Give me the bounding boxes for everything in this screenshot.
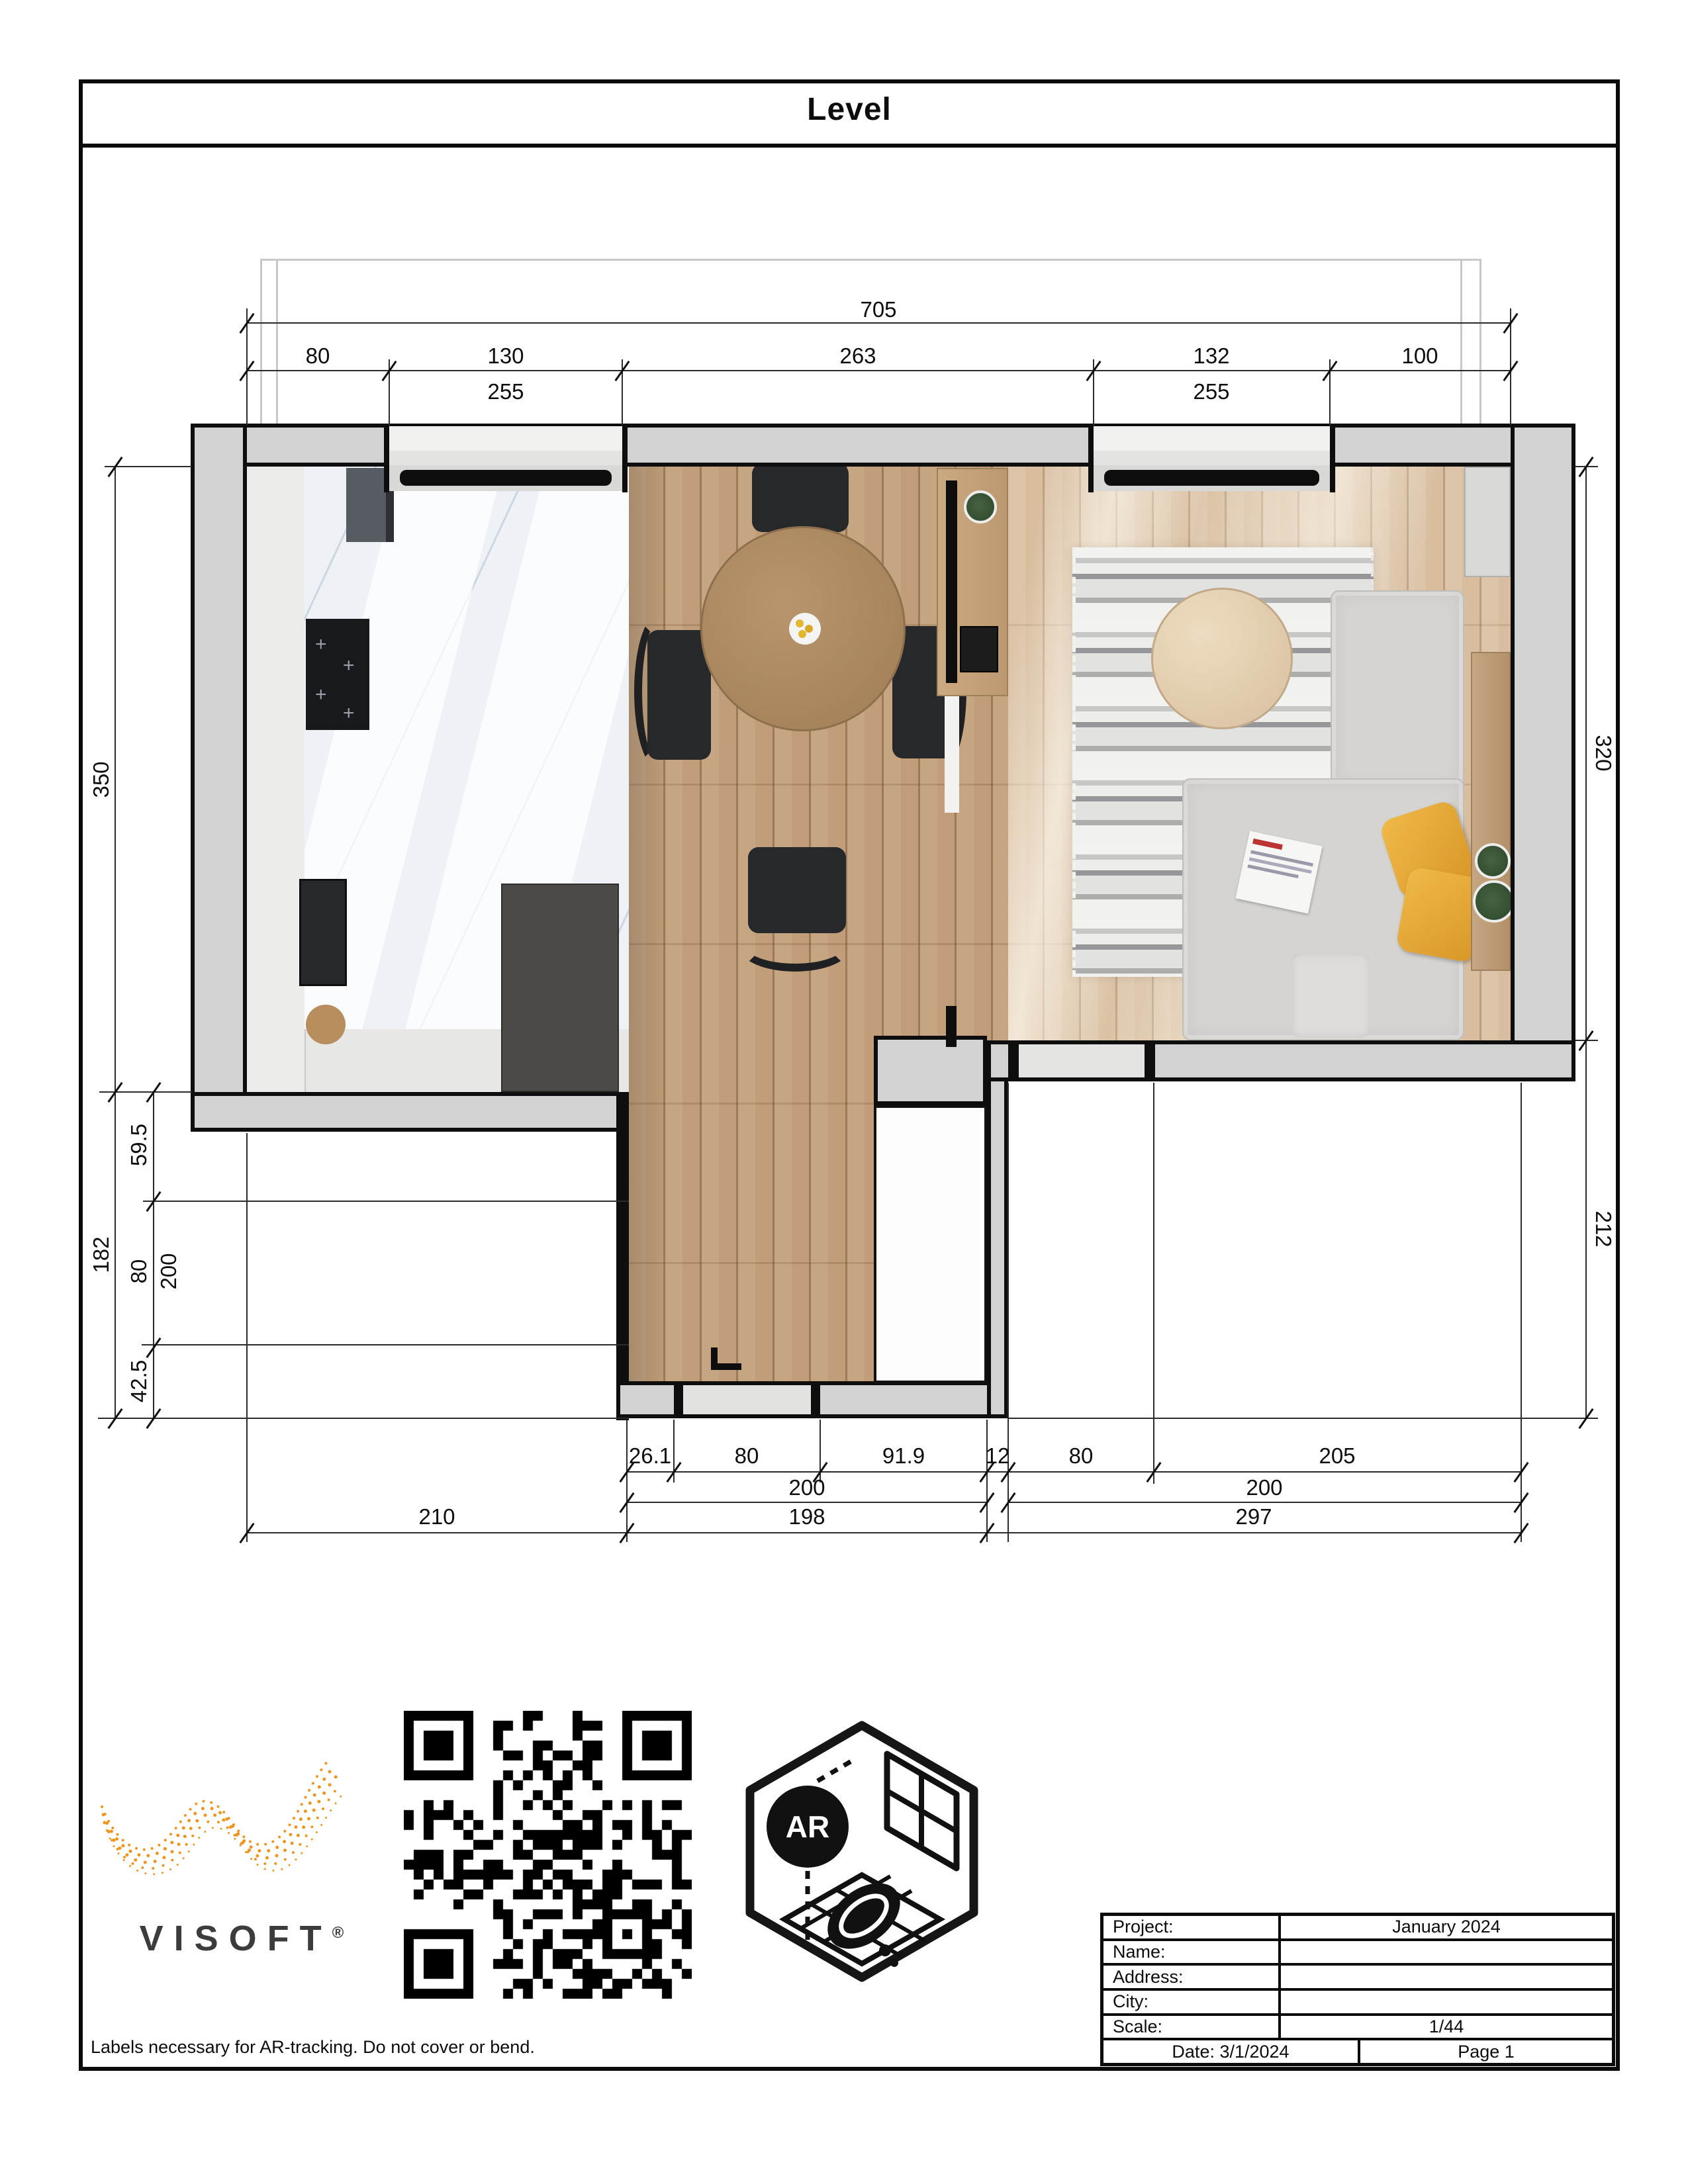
- field-value: [1281, 1966, 1612, 1988]
- window-blind-bar: [1104, 470, 1319, 486]
- door-jamb: [946, 1006, 957, 1047]
- kitchen-cabinet-run: [247, 467, 306, 1092]
- door-jamb: [811, 1381, 820, 1418]
- coffee-table: [1151, 588, 1293, 729]
- kitchen-stool: [306, 1005, 346, 1044]
- tv-edge: [946, 480, 957, 683]
- plant: [1475, 843, 1511, 879]
- title-block-row: Name:: [1103, 1941, 1612, 1966]
- oven: [299, 879, 347, 986]
- page-title: Level: [79, 91, 1620, 128]
- dining-chair: [647, 630, 711, 760]
- ar-badge: AR: [738, 1717, 986, 1985]
- balcony-outline: [260, 259, 1481, 428]
- page-number: Page 1: [1360, 2040, 1612, 2063]
- qr-code: [404, 1711, 692, 1999]
- sofa-back-section: [1331, 590, 1464, 789]
- field-value: January 2024: [1281, 1916, 1612, 1938]
- title-block-date-row: Date: 3/1/2024 Page 1: [1103, 2040, 1612, 2063]
- balcony-sideline-right: [1460, 259, 1462, 424]
- kitchen-sink-unit: [346, 468, 386, 542]
- field-value: [1281, 1941, 1612, 1964]
- window-frame: [1330, 424, 1335, 492]
- title-block-row: Address:: [1103, 1966, 1612, 1991]
- field-label: Project:: [1103, 1916, 1281, 1938]
- door-jamb: [1008, 1040, 1019, 1081]
- field-label: City:: [1103, 1991, 1281, 2013]
- balcony-sideline-left: [276, 259, 278, 424]
- wall-left: [191, 424, 247, 1132]
- cooktop: ++ ++: [306, 619, 369, 730]
- dining-chair: [748, 847, 846, 933]
- window-blind-bar: [400, 470, 612, 486]
- ar-badge-label: AR: [786, 1809, 829, 1844]
- window-frame: [1088, 424, 1094, 492]
- field-label: Address:: [1103, 1966, 1281, 1988]
- ar-tracking-footnote: Labels necessary for AR-tracking. Do not…: [91, 2037, 535, 2058]
- sofa-ottoman: [1291, 953, 1370, 1038]
- title-block: Project: January 2024 Name: Address: Cit…: [1100, 1913, 1615, 2066]
- title-block-row: City:: [1103, 1991, 1612, 2016]
- door-symbol: [711, 1363, 741, 1370]
- window: [389, 426, 622, 491]
- wall-stub-hall: [874, 1036, 987, 1105]
- plant: [964, 490, 997, 523]
- field-value: 1/44: [1281, 2016, 1612, 2038]
- living-door-opening: [1019, 1044, 1145, 1077]
- wall-hall-left: [616, 1092, 629, 1420]
- lemon: [798, 630, 806, 638]
- tv-stand-lower: [945, 696, 959, 813]
- door-jamb: [674, 1381, 683, 1418]
- book: [960, 626, 998, 672]
- hall-floor-shadow: [629, 467, 669, 1381]
- window-frame: [622, 424, 628, 492]
- wall-stub-vertical: [987, 1040, 1008, 1418]
- wall-kitchen-bottom: [191, 1092, 629, 1132]
- field-value: [1281, 1991, 1612, 2013]
- date-field: Date: 3/1/2024: [1103, 2040, 1360, 2063]
- window: [1094, 426, 1330, 491]
- entry-door-opening: [674, 1385, 820, 1414]
- registered-mark: ®: [332, 1924, 344, 1942]
- side-table: [1471, 652, 1511, 971]
- window-frame: [384, 424, 389, 492]
- floor-plan-page: Level ++ ++: [0, 0, 1688, 2184]
- visoft-wave-logo: [93, 1734, 364, 1893]
- closet-unrendered: [874, 1105, 987, 1383]
- visoft-logo-text: VISOFT®: [99, 1918, 384, 1959]
- wall-right: [1511, 424, 1575, 1081]
- field-label: Name:: [1103, 1941, 1281, 1964]
- lemon: [796, 619, 804, 627]
- door-jamb: [1145, 1040, 1155, 1081]
- title-block-row: Scale: 1/44: [1103, 2016, 1612, 2041]
- wardrobe: [1464, 467, 1511, 577]
- lemon: [805, 625, 813, 633]
- title-block-row: Project: January 2024: [1103, 1916, 1612, 1941]
- field-label: Scale:: [1103, 2016, 1281, 2038]
- kitchen-tall-cabinet: [501, 884, 619, 1092]
- plant: [1473, 880, 1515, 923]
- dining-chair: [752, 463, 849, 532]
